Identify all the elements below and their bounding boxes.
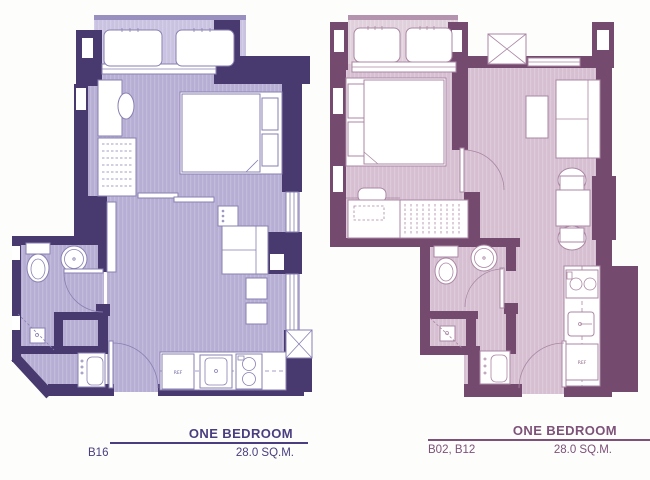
right-ac-unit-2 <box>406 26 452 62</box>
right-coffee-table <box>526 96 548 138</box>
right-toilet <box>434 246 458 284</box>
unit-left-numbers: B16 <box>88 447 108 459</box>
svg-text:REF: REF <box>578 360 587 366</box>
left-side-table <box>218 206 238 226</box>
unit-right-area: 28.0 SQ.M. <box>554 444 612 456</box>
right-wardrobe <box>400 200 468 238</box>
unit-left-floorplan: REF <box>12 15 312 396</box>
unit-right-numbers: B02, B12 <box>428 444 475 456</box>
unit-left-title: ONE BEDROOM <box>86 426 308 441</box>
right-kitchen-sink <box>568 312 594 336</box>
right-sofa <box>556 80 600 158</box>
left-tv-console <box>107 202 116 272</box>
floorplan-canvas: REF <box>0 0 650 480</box>
left-stove <box>236 354 262 389</box>
left-right-wall-window-lower <box>286 274 298 330</box>
unit-right-label-block: ONE BEDROOM B02, B12 28.0 SQ.M. <box>428 423 650 456</box>
unit-left-label-block: ONE BEDROOM B16 28.0 SQ.M. <box>86 426 308 459</box>
left-right-wall-window-upper <box>286 192 298 232</box>
left-sofa <box>222 226 268 274</box>
left-refrigerator: REF <box>162 354 194 389</box>
right-refrigerator: REF <box>566 344 598 380</box>
right-dining-set <box>556 168 590 250</box>
left-ac-unit-1 <box>104 28 162 66</box>
svg-text:REF: REF <box>174 370 183 376</box>
left-washing-machine <box>78 353 105 387</box>
left-ac-unit-2 <box>176 28 234 66</box>
right-washing-machine <box>480 351 510 384</box>
unit-right-title: ONE BEDROOM <box>428 423 650 438</box>
left-toilet <box>26 243 50 282</box>
left-ac-ledge <box>286 330 312 358</box>
left-kitchen-sink <box>200 355 232 388</box>
left-bed <box>180 92 282 174</box>
unit-left-area: 28.0 SQ.M. <box>236 447 294 459</box>
unit-right-floorplan: REF <box>330 15 638 397</box>
right-stove <box>566 270 598 298</box>
floorplan-drawing: REF <box>0 0 650 480</box>
left-wardrobe <box>98 138 136 196</box>
unit-right-underline <box>428 439 650 441</box>
right-basin <box>471 245 497 271</box>
right-ac-unit-1 <box>354 26 400 62</box>
right-top-window <box>528 58 580 66</box>
left-basin <box>61 246 87 272</box>
right-bed <box>346 78 446 166</box>
unit-left-underline <box>110 442 308 444</box>
right-bedroom-window <box>352 62 456 72</box>
right-ac-ledge <box>488 34 526 64</box>
